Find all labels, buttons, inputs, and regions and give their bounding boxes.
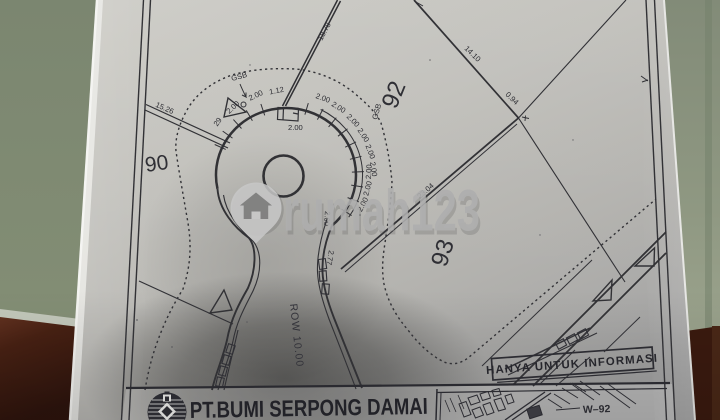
svg-text:PT.BUMI SERPONG DAMAI: PT.BUMI SERPONG DAMAI [190, 393, 428, 420]
svg-text:W–92: W–92 [583, 403, 611, 416]
svg-text:2.00: 2.00 [288, 123, 303, 132]
svg-text:90: 90 [143, 151, 169, 177]
svg-text:rumah123: rumah123 [283, 179, 480, 244]
svg-text:2.00: 2.00 [364, 164, 374, 179]
